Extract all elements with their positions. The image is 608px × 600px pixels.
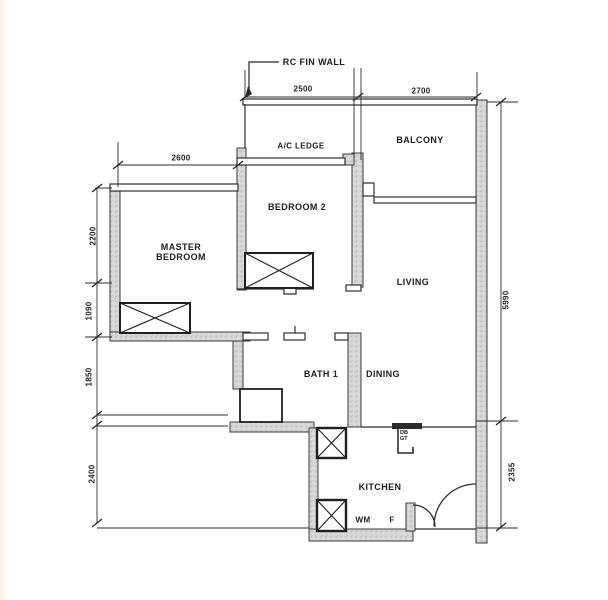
- dim-2500: 2500: [294, 85, 313, 94]
- fixture-label-fridge: F: [389, 516, 394, 525]
- ac-ledge-bottom-wall: [237, 158, 345, 165]
- dim-1090: 1090: [85, 302, 94, 321]
- callout-rc-fin-wall: RC FIN WALL: [283, 57, 345, 67]
- room-label-kitchen: KITCHEN: [359, 482, 402, 492]
- bath-top-wall-segment: [243, 333, 268, 340]
- dim-5990: 5990: [502, 291, 511, 310]
- master-bedroom-line2: BEDROOM: [156, 252, 206, 262]
- bath-right-wall-foot: [335, 333, 348, 340]
- shaft2-icon: [317, 500, 346, 531]
- bath-door-leaf: [284, 333, 305, 340]
- balcony-living-divider: [374, 197, 476, 203]
- room-label-bedroom2: BEDROOM 2: [268, 202, 326, 212]
- bedroom2-bottom-line: [237, 289, 314, 294]
- room-label-living: LIVING: [397, 277, 429, 287]
- room-label-master-bedroom: MASTER BEDROOM: [156, 242, 206, 262]
- wardrobe-icon: [245, 253, 313, 288]
- bedroom2-wall-foot: [346, 285, 361, 291]
- dimension-lines: [85, 68, 518, 528]
- floor-plan: RC FIN WALL 2500 2700 2600 2200 1090 185…: [0, 0, 608, 600]
- dim-2400: 2400: [88, 465, 97, 484]
- shower-icon: [240, 389, 282, 422]
- gt-label: GT: [400, 437, 408, 443]
- master-wardrobe-icon: [120, 303, 190, 333]
- room-label-bath1: BATH 1: [304, 369, 338, 379]
- fixture-label-wm: WM: [355, 516, 370, 525]
- dim-2355: 2355: [508, 463, 517, 482]
- dim-1850: 1850: [85, 368, 94, 387]
- shaft-icon: [317, 428, 346, 458]
- door-swing-icon: [413, 484, 476, 527]
- room-label-balcony: BALCONY: [396, 135, 443, 145]
- dim-2600: 2600: [172, 154, 191, 163]
- master-top-wall: [110, 184, 238, 191]
- master-left-wall: [110, 184, 120, 341]
- room-label-ac-ledge: A/C LEDGE: [277, 142, 324, 151]
- bath-bottom-wall: [230, 422, 314, 432]
- dim-2200: 2200: [89, 227, 98, 246]
- leader-arrow-icon: [245, 62, 279, 98]
- bedroom2-right-wall: [352, 153, 363, 287]
- entry-stub-wall: [406, 503, 415, 531]
- right-exterior-wall: [476, 100, 487, 543]
- master-bedroom-line1: MASTER: [156, 242, 206, 252]
- bath-right-wall: [348, 333, 361, 427]
- bath-left-wall: [233, 341, 243, 389]
- room-label-dining: DINING: [366, 369, 400, 379]
- fixture-label-db-gt: DB GT: [400, 431, 408, 442]
- top-wall: [243, 99, 477, 105]
- window-post: [363, 183, 374, 196]
- dim-2700: 2700: [412, 87, 431, 96]
